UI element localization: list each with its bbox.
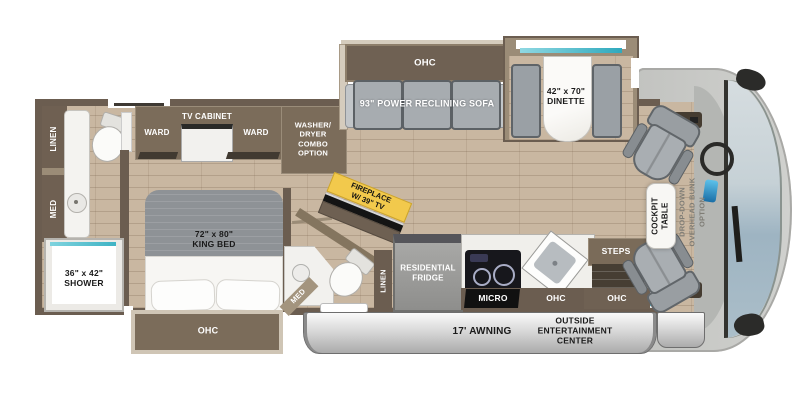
awning-label: 17' AWNING xyxy=(452,326,511,338)
floorplan-canvas: LINEN MED 36" x 42" SHOWER TV CABINET WA… xyxy=(0,0,800,408)
cabinet-door-strip xyxy=(226,152,280,159)
kitchen-ohc-label: OHC xyxy=(546,293,566,303)
ward-left-label: WARD xyxy=(144,128,169,138)
tv-cabinet-label: TV CABINET xyxy=(182,112,232,122)
dinette-label: 42" x 70" DINETTE xyxy=(547,86,585,106)
fridge-label: RESIDENTIAL FRIDGE xyxy=(400,263,456,282)
burner-icon xyxy=(473,268,491,286)
sofa-ohc-label: OHC xyxy=(414,57,436,68)
shower-glass xyxy=(50,242,116,246)
tv-screen xyxy=(181,124,233,162)
window xyxy=(631,58,639,88)
cockpit-table-label: COCKPIT TABLE xyxy=(650,197,669,234)
sofa-label: 93" POWER RECLINING SOFA xyxy=(347,99,507,110)
drop-down-bunk-label: DROP-DOWN OVERHEAD BUNK OPTION xyxy=(677,157,706,267)
bath-door xyxy=(121,112,132,152)
pillow-icon xyxy=(215,279,280,312)
shower-label: 36" x 42" SHOWER xyxy=(64,268,103,288)
king-bed-label: 72" x 80" KING BED xyxy=(192,229,235,249)
window-glass xyxy=(520,48,622,53)
dinette-bench xyxy=(511,64,541,138)
linen-mid-label: LINEN xyxy=(379,269,388,293)
outside-entertainment-label: OUTSIDE ENTERTAINMENT CENTER xyxy=(538,316,613,345)
med-rear-label: MED xyxy=(49,200,59,218)
vanity-counter xyxy=(64,110,90,238)
ward-right-label: WARD xyxy=(243,128,268,138)
washer-dryer-label: WASHER/ DRYER COMBO OPTION xyxy=(295,120,331,158)
cooktop-icon xyxy=(465,250,521,292)
burner-icon xyxy=(493,264,515,286)
dinette-bench xyxy=(592,64,622,138)
cooktop-panel xyxy=(470,254,488,262)
pillow-icon xyxy=(150,279,215,312)
sink-drain-icon xyxy=(74,200,78,204)
entry-step-exterior xyxy=(657,312,705,348)
cabinet-door-strip xyxy=(138,152,178,159)
linen-rear-label: LINEN xyxy=(49,127,59,152)
entry-ohc-label: OHC xyxy=(607,293,627,303)
bed-ohc-label: OHC xyxy=(198,326,219,337)
micro-label: MICRO xyxy=(478,293,507,303)
